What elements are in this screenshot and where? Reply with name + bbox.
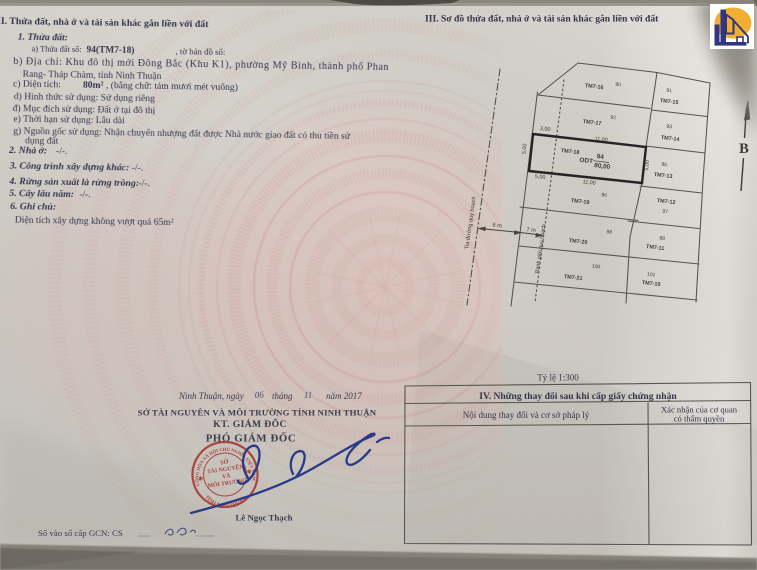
svg-text:Lê Ngọc Thạch: Lê Ngọc Thạch xyxy=(235,513,292,523)
svg-text:III. Sơ đồ thửa đất, nhà ở và: III. Sơ đồ thửa đất, nhà ở và tài sản kh… xyxy=(425,14,659,25)
svg-text:, tờ bản đồ số:: , tờ bản đồ số: xyxy=(175,46,225,57)
svg-text:-/-.: -/-. xyxy=(79,189,91,200)
svg-text:5,00: 5,00 xyxy=(644,160,651,171)
svg-text:06: 06 xyxy=(254,389,264,400)
svg-text:4. Rừng sản xuất là rừng trồng: 4. Rừng sản xuất là rừng trồng: xyxy=(8,176,139,189)
svg-text:80m²: 80m² xyxy=(83,80,104,91)
svg-text:a) Thửa đất số:: a) Thửa đất số: xyxy=(31,44,81,54)
svg-text:Số vào sổ cấp GCN: CS: Số vào sổ cấp GCN: CS xyxy=(38,528,123,538)
svg-text:c) Diện tích:: c) Diện tích: xyxy=(13,79,61,91)
svg-text:-/-.: -/-. xyxy=(138,178,150,189)
svg-text:3,00: 3,00 xyxy=(540,126,551,133)
svg-text:5,00: 5,00 xyxy=(521,143,528,154)
svg-text:90: 90 xyxy=(615,82,621,89)
svg-text:5. Cây lâu năm:: 5. Cây lâu năm: xyxy=(9,188,74,200)
svg-text:.........: ......... xyxy=(196,530,214,539)
svg-text:-/-.: -/-. xyxy=(132,162,144,173)
svg-text:-/-.: -/-. xyxy=(56,146,68,157)
svg-text:94(TM7-18): 94(TM7-18) xyxy=(86,44,134,56)
svg-text:98: 98 xyxy=(606,229,612,236)
svg-text:1. Thửa đất:: 1. Thửa đất: xyxy=(18,32,68,44)
svg-text:99: 99 xyxy=(659,235,665,242)
svg-text:B: B xyxy=(739,141,749,157)
svg-text:2. Nhà ở:: 2. Nhà ở: xyxy=(8,145,47,157)
svg-text:92: 92 xyxy=(610,115,616,122)
svg-text:d) Hình thức sử dụng: Sử dụng: d) Hình thức sử dụng: Sử dụng riêng xyxy=(14,91,155,104)
svg-text:94: 94 xyxy=(596,153,604,161)
svg-text:KT. GIÁM ĐỐC: KT. GIÁM ĐỐC xyxy=(213,417,287,430)
svg-text:7 m: 7 m xyxy=(526,227,536,234)
svg-text:e) Thời hạn sử dụng: Lâu dài: e) Thời hạn sử dụng: Lâu dài xyxy=(13,114,125,127)
svg-text:Tỷ lệ 1:300: Tỷ lệ 1:300 xyxy=(537,373,579,383)
svg-text:91: 91 xyxy=(666,88,672,95)
svg-text:95: 95 xyxy=(661,162,667,169)
svg-text:6. Ghi chú:: 6. Ghi chú: xyxy=(10,201,56,213)
svg-text:tháng: tháng xyxy=(272,391,293,401)
svg-text:IV. Những thay đổi sau khi cấp: IV. Những thay đổi sau khi cấp giấy chứn… xyxy=(479,391,677,402)
svg-text:3. Công trình xây dựng khác:: 3. Công trình xây dựng khác: xyxy=(9,160,130,173)
svg-text:93: 93 xyxy=(666,124,672,131)
svg-text:SỞ TÀI NGUYÊN VÀ MÔI TRƯỜNG TỈ: SỞ TÀI NGUYÊN VÀ MÔI TRƯỜNG TỈNH NINH TH… xyxy=(138,408,377,418)
svg-text:có thẩm quyền: có thẩm quyền xyxy=(674,414,725,424)
svg-text:11: 11 xyxy=(303,389,312,400)
svg-text:......: ...... xyxy=(138,530,150,539)
svg-text:năm 2017: năm 2017 xyxy=(326,391,362,401)
svg-text:101: 101 xyxy=(647,272,656,279)
svg-text:, (bằng chữ: tám mươi mét vuôn: , (bằng chữ: tám mươi mét vuông) xyxy=(106,80,238,93)
svg-text:100: 100 xyxy=(592,264,601,271)
svg-text:97: 97 xyxy=(662,209,668,216)
svg-text:96: 96 xyxy=(601,192,607,199)
svg-text:6 m: 6 m xyxy=(492,223,502,230)
svg-text:Nội dung thay đổi và cơ sở phá: Nội dung thay đổi và cơ sở pháp lý xyxy=(463,410,590,420)
svg-text:Ninh Thuận, ngày: Ninh Thuận, ngày xyxy=(178,391,244,401)
svg-text:5,00: 5,00 xyxy=(535,174,546,181)
